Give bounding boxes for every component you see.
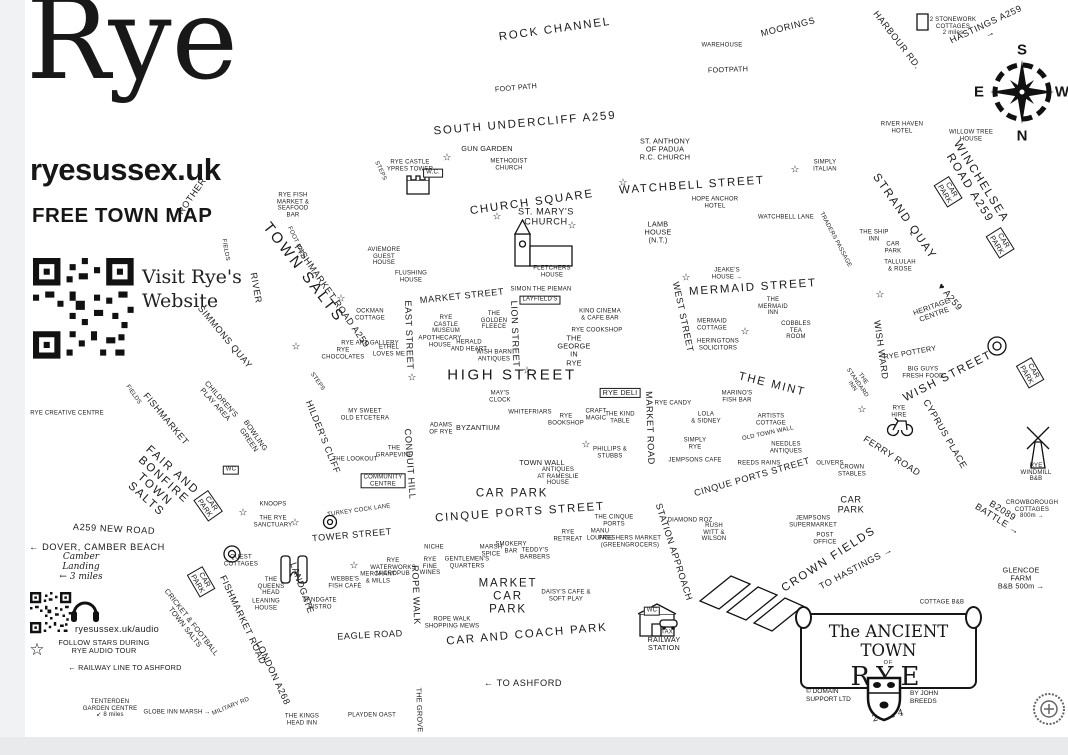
cartouche-title: The ANCIENT TOWN <box>802 622 975 660</box>
website-url: ryesussex.uk <box>30 152 220 188</box>
audio-tour-star-icon: ☆ <box>619 178 628 189</box>
qr-caption: Visit Rye's Website <box>142 266 242 314</box>
rye-coat-of-arms-icon <box>866 676 902 722</box>
audio-tour-star-icon: ☆ <box>682 273 691 284</box>
audio-tour-star-icon: ☆ <box>292 342 301 353</box>
map-tagline: FREE TOWN MAP <box>32 204 212 228</box>
audio-tour-star-icon: ☆ <box>29 640 44 660</box>
audio-tour-star-icon: ☆ <box>291 518 300 529</box>
audio-tour-star-icon: ☆ <box>741 327 750 338</box>
map-title: Rye <box>26 0 238 96</box>
qr-caption-line: Visit Rye's <box>142 266 242 288</box>
compass-south-label: S <box>1017 42 1027 59</box>
publisher-credit: © DOMAIN SUPPORT LTD <box>806 688 851 704</box>
compass-west-label: W <box>1055 84 1068 101</box>
audio-tour-star-icon: ☆ <box>408 373 417 384</box>
compass-east-label: E <box>974 84 984 101</box>
window-bottom-chrome <box>0 737 1068 755</box>
audio-tour-star-icon: ☆ <box>858 405 867 416</box>
compass-north-label: N <box>1017 128 1028 145</box>
audio-tour-star-icon: ☆ <box>443 153 452 164</box>
audio-tour-star-icon: ☆ <box>523 366 532 377</box>
rye-town-map: ROCK CHANNELMOORINGSWAREHOUSEHARBOUR RD.… <box>0 0 1068 755</box>
audio-tour-star-icon: ☆ <box>350 561 359 572</box>
audio-tour-star-icon: ☆ <box>791 165 800 176</box>
audio-tour-star-icon: ☆ <box>239 508 248 519</box>
qr-caption-line: Website <box>142 290 218 312</box>
author-credit: BY JOHN BREEDS <box>910 690 938 706</box>
audio-tour-star-icon: ☆ <box>568 221 577 232</box>
audio-tour-star-icon: ☆ <box>337 294 346 305</box>
audio-tour-star-icon: ☆ <box>582 440 591 451</box>
audio-tour-star-icon: ☆ <box>493 212 502 223</box>
audio-tour-star-icon: ☆ <box>876 290 885 301</box>
